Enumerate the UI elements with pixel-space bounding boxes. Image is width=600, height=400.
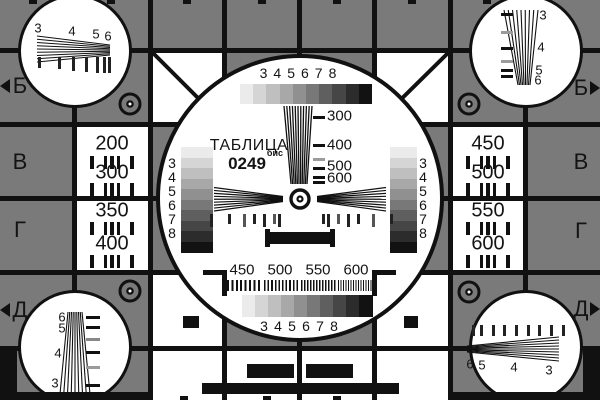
grayscale-step-top	[359, 84, 373, 104]
grayscale-step-bottom	[268, 295, 282, 317]
center-vertical-wedge	[298, 106, 299, 184]
grayscale-step-bottom	[307, 295, 321, 317]
right-burst	[480, 183, 483, 196]
stripe-burst-segment	[301, 280, 336, 291]
br-burst-tick	[492, 325, 495, 336]
burst-tick	[357, 214, 360, 224]
left-burst	[117, 222, 120, 235]
black-square-left	[183, 316, 199, 328]
tl-burst-tick	[72, 57, 75, 71]
br-burst-tick	[527, 325, 530, 336]
grayscale-step-right	[390, 200, 417, 211]
burst-tick	[322, 214, 325, 224]
stripe-burst-segment	[264, 280, 299, 291]
grayscale-step-bottom	[294, 295, 308, 317]
cut-digit-stub-top	[333, 0, 341, 4]
bl-scale-tick	[86, 338, 100, 341]
right-burst	[480, 255, 483, 268]
card-number-suffix: бис	[267, 148, 283, 158]
burst-tick	[372, 214, 375, 227]
right-burst	[486, 156, 489, 169]
grayscale-step-left	[181, 200, 213, 211]
cut-digit-stub-bottom	[451, 396, 459, 400]
bl-resolution-wedge	[71, 312, 73, 394]
br-burst-tick	[538, 325, 541, 336]
left-burst	[110, 222, 113, 235]
bottom-bar-lower	[202, 383, 399, 394]
grayscale-step-left	[181, 179, 213, 190]
right-burst	[493, 183, 496, 196]
bottom-scale-label: 550	[305, 262, 330, 279]
grayscale-step-bottom	[333, 295, 347, 317]
grayscale-step-bottom	[281, 295, 295, 317]
br-burst-tick	[515, 325, 518, 336]
frequency-tick	[313, 181, 325, 184]
burst-tick	[263, 214, 266, 227]
cut-digit-stub-top	[183, 0, 191, 4]
left-burst	[110, 156, 113, 169]
right-burst	[506, 222, 509, 235]
grayscale-label-top: 6	[301, 65, 309, 81]
br-burst-tick	[550, 325, 553, 336]
tr-scale-tick	[501, 60, 513, 63]
grayscale-step-right	[390, 179, 417, 190]
burst-tick	[390, 214, 393, 224]
left-column-number: 400	[95, 233, 128, 256]
grayscale-step-left	[181, 158, 213, 169]
grayscale-step-top	[240, 84, 254, 104]
right-burst	[486, 255, 489, 268]
grayscale-step-bottom	[346, 295, 360, 317]
bl-resolution-wedge	[77, 312, 79, 394]
bottom-scale-label: 600	[343, 262, 368, 279]
right-burst	[493, 222, 496, 235]
bl-wedge-label: 5	[58, 321, 65, 336]
grayscale-step-top	[306, 84, 320, 104]
left-burst	[90, 183, 93, 196]
right-burst	[493, 255, 496, 268]
left-burst	[110, 255, 113, 268]
right-burst	[486, 183, 489, 196]
right-burst	[466, 183, 469, 196]
center-vertical-wedge	[302, 106, 303, 184]
frequency-tick-label: 300	[327, 108, 352, 125]
tr-scale-tick	[501, 47, 513, 50]
right-burst	[466, 222, 469, 235]
bl-wedge-label: 4	[54, 346, 61, 361]
left-burst	[130, 255, 133, 268]
br-wedge-label: 4	[510, 360, 517, 375]
left-burst	[104, 183, 107, 196]
frequency-tick-label: 600	[327, 170, 352, 187]
grayscale-step-top	[253, 84, 267, 104]
tl-resolution-wedge	[37, 51, 110, 52]
stripe-burst-segment	[338, 280, 373, 291]
tl-wedge-label: 4	[68, 24, 75, 39]
bottom-black-band-left	[0, 392, 152, 400]
grayscale-step-right	[390, 189, 417, 200]
burst-tick	[327, 214, 330, 227]
bl-scale-tick	[86, 326, 100, 329]
burst-tick	[243, 214, 246, 227]
right-column-number: 550	[471, 200, 504, 223]
center-bullseye-core	[299, 198, 302, 201]
grayscale-label-top: 3	[260, 65, 268, 81]
left-burst	[110, 183, 113, 196]
br-wedge-label: 6	[466, 357, 473, 372]
row-label-left: Б	[13, 73, 27, 99]
left-burst	[130, 183, 133, 196]
br-wedge-label: 3	[545, 363, 552, 378]
right-burst	[466, 255, 469, 268]
cut-digit-stub-bottom	[113, 396, 121, 400]
tl-burst-tick	[96, 57, 99, 73]
grayscale-step-left	[181, 147, 213, 158]
target-core	[129, 290, 132, 293]
left-column-number: 350	[95, 200, 128, 223]
burst-tick	[347, 214, 350, 227]
tl-burst-tick	[103, 57, 106, 73]
black-square-right	[404, 316, 418, 328]
grayscale-step-bottom	[242, 295, 256, 317]
grayscale-step-right	[390, 210, 417, 221]
tr-scale-tick	[501, 13, 513, 16]
burst-tick	[278, 214, 281, 227]
burst-tick	[253, 214, 256, 224]
tl-wedge-label: 3	[34, 21, 41, 36]
tl-burst-tick	[58, 57, 61, 69]
grayscale-step-right	[390, 231, 417, 242]
grayscale-label-right: 8	[419, 225, 427, 241]
cut-digit-stub-top	[107, 0, 115, 4]
grayscale-label-bottom: 4	[274, 318, 282, 334]
edge-arrow-right	[590, 302, 600, 316]
grayscale-label-bottom: 8	[330, 318, 338, 334]
grayscale-step-bottom	[320, 295, 334, 317]
br-burst-tick	[503, 325, 506, 336]
tr-wedge-label: 4	[537, 40, 544, 55]
grayscale-step-left	[181, 242, 213, 253]
bl-scale-tick	[86, 316, 100, 319]
bl-resolution-wedge	[68, 312, 72, 394]
tl-wedge-label: 6	[104, 29, 111, 44]
row-label-right: Д	[574, 296, 589, 322]
tl-burst-tick	[38, 57, 41, 68]
tr-wedge-label: 3	[539, 8, 546, 23]
grayscale-step-left	[181, 221, 213, 232]
left-column-number: 200	[95, 133, 128, 156]
row-label-right: Б	[574, 75, 588, 101]
right-burst	[466, 156, 469, 169]
cut-digit-stub-top	[29, 0, 37, 4]
right-burst	[480, 156, 483, 169]
bl-wedge-label: 3	[51, 376, 58, 391]
grayscale-step-left	[181, 231, 213, 242]
left-burst	[117, 156, 120, 169]
grayscale-step-right	[390, 242, 417, 253]
bottom-scale-label: 500	[267, 262, 292, 279]
grayscale-label-top: 4	[273, 65, 281, 81]
burst-tick	[228, 214, 231, 224]
row-label-left: В	[13, 149, 28, 175]
grayscale-label-bottom: 7	[316, 318, 324, 334]
frequency-tick	[313, 116, 325, 119]
grayscale-label-top: 5	[287, 65, 295, 81]
bottom-black-band-right	[449, 392, 600, 400]
cut-digit-stub-bottom	[180, 396, 188, 400]
tr-scale-tick	[501, 69, 513, 72]
inner-corner-mark	[372, 270, 396, 275]
br-burst-tick	[562, 325, 565, 336]
edge-arrow-left	[0, 303, 10, 317]
grayscale-label-bottom: 6	[302, 318, 310, 334]
grayscale-step-bottom	[359, 295, 373, 317]
left-burst	[104, 156, 107, 169]
right-burst	[506, 255, 509, 268]
bottom-scale-label: 450	[229, 262, 254, 279]
grayscale-step-top	[293, 84, 307, 104]
tr-wedge-label: 6	[534, 73, 541, 88]
grayscale-step-top	[319, 84, 333, 104]
left-burst	[130, 222, 133, 235]
tl-wedge-label: 5	[92, 27, 99, 42]
right-burst	[493, 156, 496, 169]
frequency-tick	[313, 158, 325, 161]
grayscale-step-right	[390, 158, 417, 169]
grayscale-label-left: 8	[168, 225, 176, 241]
edge-arrow-right	[590, 81, 600, 95]
frequency-tick	[313, 176, 325, 179]
left-burst	[130, 156, 133, 169]
cut-digit-stub-top	[408, 0, 416, 4]
bl-scale-tick	[86, 351, 100, 354]
row-label-left: Д	[13, 297, 28, 323]
burst-tick	[273, 214, 276, 224]
grayscale-label-bottom: 3	[260, 318, 268, 334]
grayscale-step-top	[332, 84, 346, 104]
right-burst	[480, 222, 483, 235]
cut-digit-stub-bottom	[263, 396, 271, 400]
row-label-right: Г	[575, 218, 587, 244]
row-label-left: Г	[14, 217, 26, 243]
grayscale-step-top	[346, 84, 360, 104]
tl-resolution-wedge	[37, 49, 110, 50]
edge-arrow-left	[0, 79, 10, 93]
grayscale-label-top: 8	[329, 65, 337, 81]
target-core	[468, 103, 471, 106]
left-burst	[117, 183, 120, 196]
bl-scale-tick	[86, 384, 100, 387]
left-burst	[117, 255, 120, 268]
inner-corner-mark	[203, 270, 227, 275]
frequency-tick-label: 400	[327, 137, 352, 154]
card-number-value: 0249	[228, 154, 266, 173]
grayscale-step-top	[280, 84, 294, 104]
tr-scale-tick	[501, 75, 513, 78]
br-wedge-label: 5	[478, 358, 485, 373]
grayscale-step-top	[266, 84, 280, 104]
bl-scale-tick	[86, 366, 100, 369]
grayscale-step-bottom	[255, 295, 269, 317]
grayscale-step-right	[390, 221, 417, 232]
tl-burst-tick	[108, 57, 111, 73]
test-card: 3456783456783456783456783004005006004505…	[0, 0, 600, 400]
left-burst	[90, 255, 93, 268]
grayscale-step-left	[181, 189, 213, 200]
card-number: 0249бис	[228, 154, 266, 174]
grayscale-label-bottom: 5	[288, 318, 296, 334]
grayscale-step-right	[390, 168, 417, 179]
cut-digit-stub-top	[258, 0, 266, 4]
right-column-number: 450	[471, 133, 504, 156]
right-burst	[506, 183, 509, 196]
tl-burst-tick	[85, 57, 88, 72]
bottom-bar-upper	[306, 364, 353, 378]
frequency-tick	[313, 167, 325, 170]
tr-scale-tick	[501, 31, 513, 34]
target-core	[129, 103, 132, 106]
row-label-right: В	[574, 149, 589, 175]
grayscale-step-left	[181, 168, 213, 179]
right-column-number: 600	[471, 233, 504, 256]
br-burst-tick	[480, 325, 483, 336]
burst-tick	[337, 214, 340, 224]
cut-digit-stub-bottom	[333, 396, 341, 400]
bottom-bar-upper	[247, 364, 294, 378]
target-core	[468, 291, 471, 294]
left-burst	[104, 222, 107, 235]
burst-tick	[210, 214, 213, 227]
reference-bar	[265, 232, 335, 244]
cut-digit-stub-top	[483, 0, 491, 4]
left-burst	[104, 255, 107, 268]
left-burst	[90, 222, 93, 235]
stripe-burst-segment	[227, 280, 262, 291]
left-burst	[90, 156, 93, 169]
grayscale-step-left	[181, 210, 213, 221]
grayscale-label-top: 7	[315, 65, 323, 81]
right-burst	[486, 222, 489, 235]
frequency-tick	[313, 144, 325, 147]
br-burst-tick	[472, 325, 475, 336]
grayscale-step-right	[390, 147, 417, 158]
bl-resolution-wedge	[79, 312, 83, 394]
right-burst	[506, 156, 509, 169]
